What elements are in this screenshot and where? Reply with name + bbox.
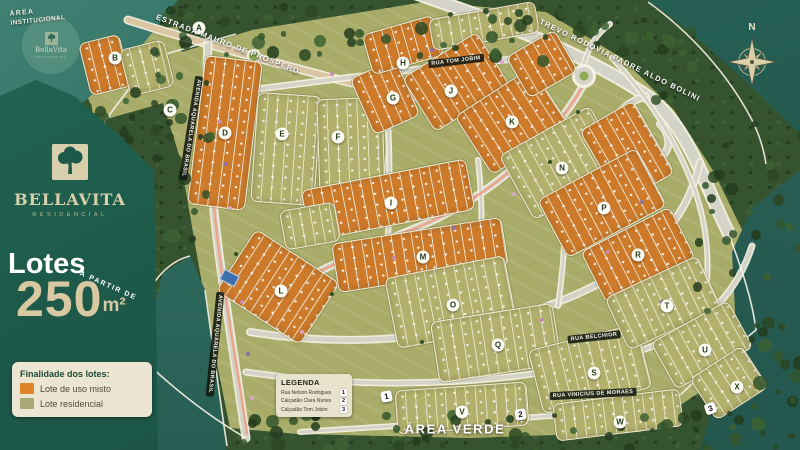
brand-watermark: BellaVita RESIDENCIAL <box>22 16 80 74</box>
block-letter-L: L <box>275 285 288 298</box>
block-letter-M: M <box>417 251 430 264</box>
block-letter-N: N <box>556 162 569 175</box>
street-label: TREVO RODOVIA PADRE ALDO BOLINI <box>538 17 702 103</box>
legenda-items: Rua Nelson Rodrigues1Calçadão Clara Nune… <box>281 389 347 413</box>
watermark-brand-name: BellaVita <box>35 46 67 54</box>
block-letter-T: T <box>661 300 674 313</box>
block-letter-U: U <box>699 344 712 357</box>
legenda-title: LEGENDA <box>281 378 347 387</box>
block-letter-P: P <box>598 202 611 215</box>
block-letter-K: K <box>506 116 519 129</box>
block-letter-V: V <box>456 406 469 419</box>
legenda-box: LEGENDA Rua Nelson Rodrigues1Calçadão Cl… <box>276 374 352 417</box>
block-letter-D: D <box>219 127 232 140</box>
legenda-item-number: 3 <box>340 406 347 413</box>
block-letter-Q: Q <box>492 339 505 352</box>
legenda-item-label: Rua Nelson Rodrigues <box>281 390 331 396</box>
block-letter-X: X <box>731 381 744 394</box>
street-label: AVENIDA AQUARELA DO BRASIL <box>206 292 225 397</box>
block-letter-E: E <box>276 128 289 141</box>
street-number-marker-2: 2 <box>514 408 526 420</box>
street-label: RUA TOM JOBIM <box>428 54 484 69</box>
block-letter-S: S <box>588 367 601 380</box>
block-letter-J: J <box>445 85 458 98</box>
area-verde-label: ÁREA VERDE <box>405 422 506 437</box>
block-letter-B: B <box>109 52 122 65</box>
block-letter-O: O <box>447 299 460 312</box>
street-label: RUA VINICIUS DE MORAES <box>549 388 636 401</box>
watermark-brand-subtitle: RESIDENCIAL <box>35 55 66 59</box>
street-number-marker-1: 1 <box>380 390 393 403</box>
block-letter-G: G <box>387 92 400 105</box>
legenda-item-label: Calçadão Clara Nunes <box>281 398 331 404</box>
compass-rose: N <box>726 18 778 99</box>
block-letter-I: I <box>385 197 398 210</box>
watermark-tree-icon <box>45 32 58 45</box>
block-letter-C: C <box>164 104 177 117</box>
legenda-item-number: 1 <box>340 389 347 396</box>
legenda-item-number: 2 <box>340 398 347 405</box>
block-letter-R: R <box>632 249 645 262</box>
street-label: RUA BELCHIOR <box>567 330 620 343</box>
masterplan-map: ABCDEFGHIJKLMNOPQRSTUVWX123ESTRADA MAURO… <box>0 0 800 450</box>
legenda-item: Calçadão Clara Nunes2 <box>281 398 347 405</box>
legenda-item-label: Calçadão Tom Jobim <box>281 407 328 413</box>
compass-north-letter: N <box>748 22 755 33</box>
street-number-marker-3: 3 <box>703 401 717 415</box>
block-letter-W: W <box>614 416 627 429</box>
street-label: ESTRADA MAURO DE PROSPERO <box>155 12 302 75</box>
street-label: AVENIDA AQUARELA DO BRASIL <box>179 76 203 181</box>
legenda-item: Rua Nelson Rodrigues1 <box>281 389 347 396</box>
block-letter-F: F <box>332 131 345 144</box>
legenda-item: Calçadão Tom Jobim3 <box>281 406 347 413</box>
block-letter-H: H <box>397 57 410 70</box>
